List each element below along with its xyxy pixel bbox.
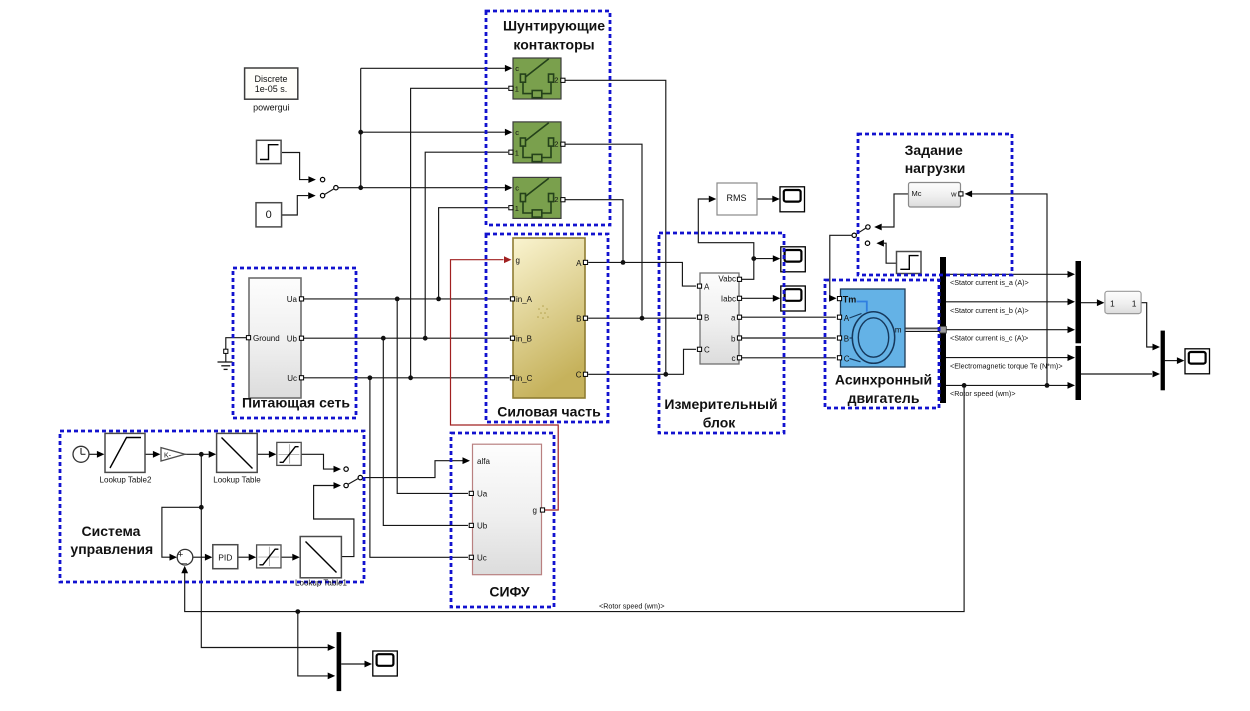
svg-text:<Electromagnetic torque Te (N*: <Electromagnetic torque Te (N*m)> — [950, 361, 1063, 370]
svg-text:Lookup Table: Lookup Table — [213, 475, 261, 484]
svg-text:w: w — [950, 190, 957, 199]
svg-text:Измерительный: Измерительный — [664, 396, 777, 412]
svg-text:A: A — [844, 314, 850, 323]
svg-text:1e-05 s.: 1e-05 s. — [255, 84, 288, 94]
svg-text:in_B: in_B — [516, 335, 532, 344]
svg-text:0: 0 — [266, 209, 272, 221]
svg-text:A: A — [704, 283, 710, 292]
svg-text:Discrete: Discrete — [254, 74, 287, 84]
svg-text:Iabc: Iabc — [721, 295, 736, 304]
svg-text:Vabc: Vabc — [718, 275, 736, 284]
svg-text:C: C — [844, 355, 850, 364]
svg-text:1: 1 — [1132, 299, 1137, 309]
svg-text:двигатель: двигатель — [848, 390, 920, 406]
svg-text:A: A — [576, 259, 582, 268]
svg-text:m: m — [895, 325, 902, 334]
svg-text:C: C — [704, 346, 710, 355]
svg-text:Система: Система — [82, 523, 141, 539]
svg-text:RMS: RMS — [727, 193, 747, 203]
svg-text:PID: PID — [218, 553, 232, 563]
svg-text:1: 1 — [1110, 299, 1115, 309]
svg-text:_: _ — [181, 554, 188, 565]
svg-text:Uc: Uc — [477, 554, 487, 563]
svg-text:Задание: Задание — [905, 142, 963, 158]
svg-text:<Rotor speed (wm)>: <Rotor speed (wm)> — [950, 389, 1016, 398]
svg-text:Mc: Mc — [912, 189, 922, 198]
svg-text:контакторы: контакторы — [513, 37, 594, 53]
svg-text:Uc: Uc — [287, 374, 297, 383]
svg-text:блок: блок — [703, 415, 737, 431]
svg-text:<Rotor speed (wm)>: <Rotor speed (wm)> — [599, 601, 665, 610]
svg-text:Lookup Table2: Lookup Table2 — [100, 475, 152, 484]
svg-text:B: B — [844, 334, 849, 343]
svg-text:Ub: Ub — [477, 522, 488, 531]
svg-text:B: B — [704, 314, 709, 323]
svg-text:in_A: in_A — [516, 295, 533, 304]
svg-text:<Stator current is_b (A)>: <Stator current is_b (A)> — [950, 306, 1029, 315]
svg-text:Силовая часть: Силовая часть — [497, 404, 601, 420]
svg-text:нагрузки: нагрузки — [905, 160, 966, 176]
svg-text:Шунтирующие: Шунтирующие — [503, 18, 605, 34]
svg-text:Ground: Ground — [253, 334, 280, 343]
svg-text:B: B — [576, 315, 581, 324]
svg-text:alfa: alfa — [477, 457, 490, 466]
svg-text:in_C: in_C — [516, 374, 533, 383]
svg-text:Ua: Ua — [477, 490, 488, 499]
svg-text:Lookup Table1: Lookup Table1 — [295, 579, 347, 588]
svg-text:Tm: Tm — [843, 295, 857, 305]
svg-text:g: g — [516, 256, 520, 265]
svg-text:управления: управления — [70, 541, 153, 557]
svg-text:Ua: Ua — [287, 295, 298, 304]
svg-text:<Stator current is_c (A)>: <Stator current is_c (A)> — [950, 334, 1028, 343]
svg-text:K-: K- — [164, 453, 172, 460]
svg-text:Асинхронный: Асинхронный — [835, 372, 932, 388]
svg-text:a: a — [731, 314, 736, 323]
svg-text:powergui: powergui — [253, 102, 290, 112]
svg-text:СИФУ: СИФУ — [489, 584, 530, 600]
svg-text:C: C — [576, 371, 582, 380]
svg-text:c: c — [732, 354, 736, 363]
svg-text:Ub: Ub — [287, 335, 298, 344]
svg-text:<Stator current is_a (A)>: <Stator current is_a (A)> — [950, 278, 1029, 287]
svg-text:Питающая сеть: Питающая сеть — [242, 395, 350, 411]
svg-text:b: b — [731, 334, 736, 343]
svg-text:g: g — [533, 506, 537, 515]
